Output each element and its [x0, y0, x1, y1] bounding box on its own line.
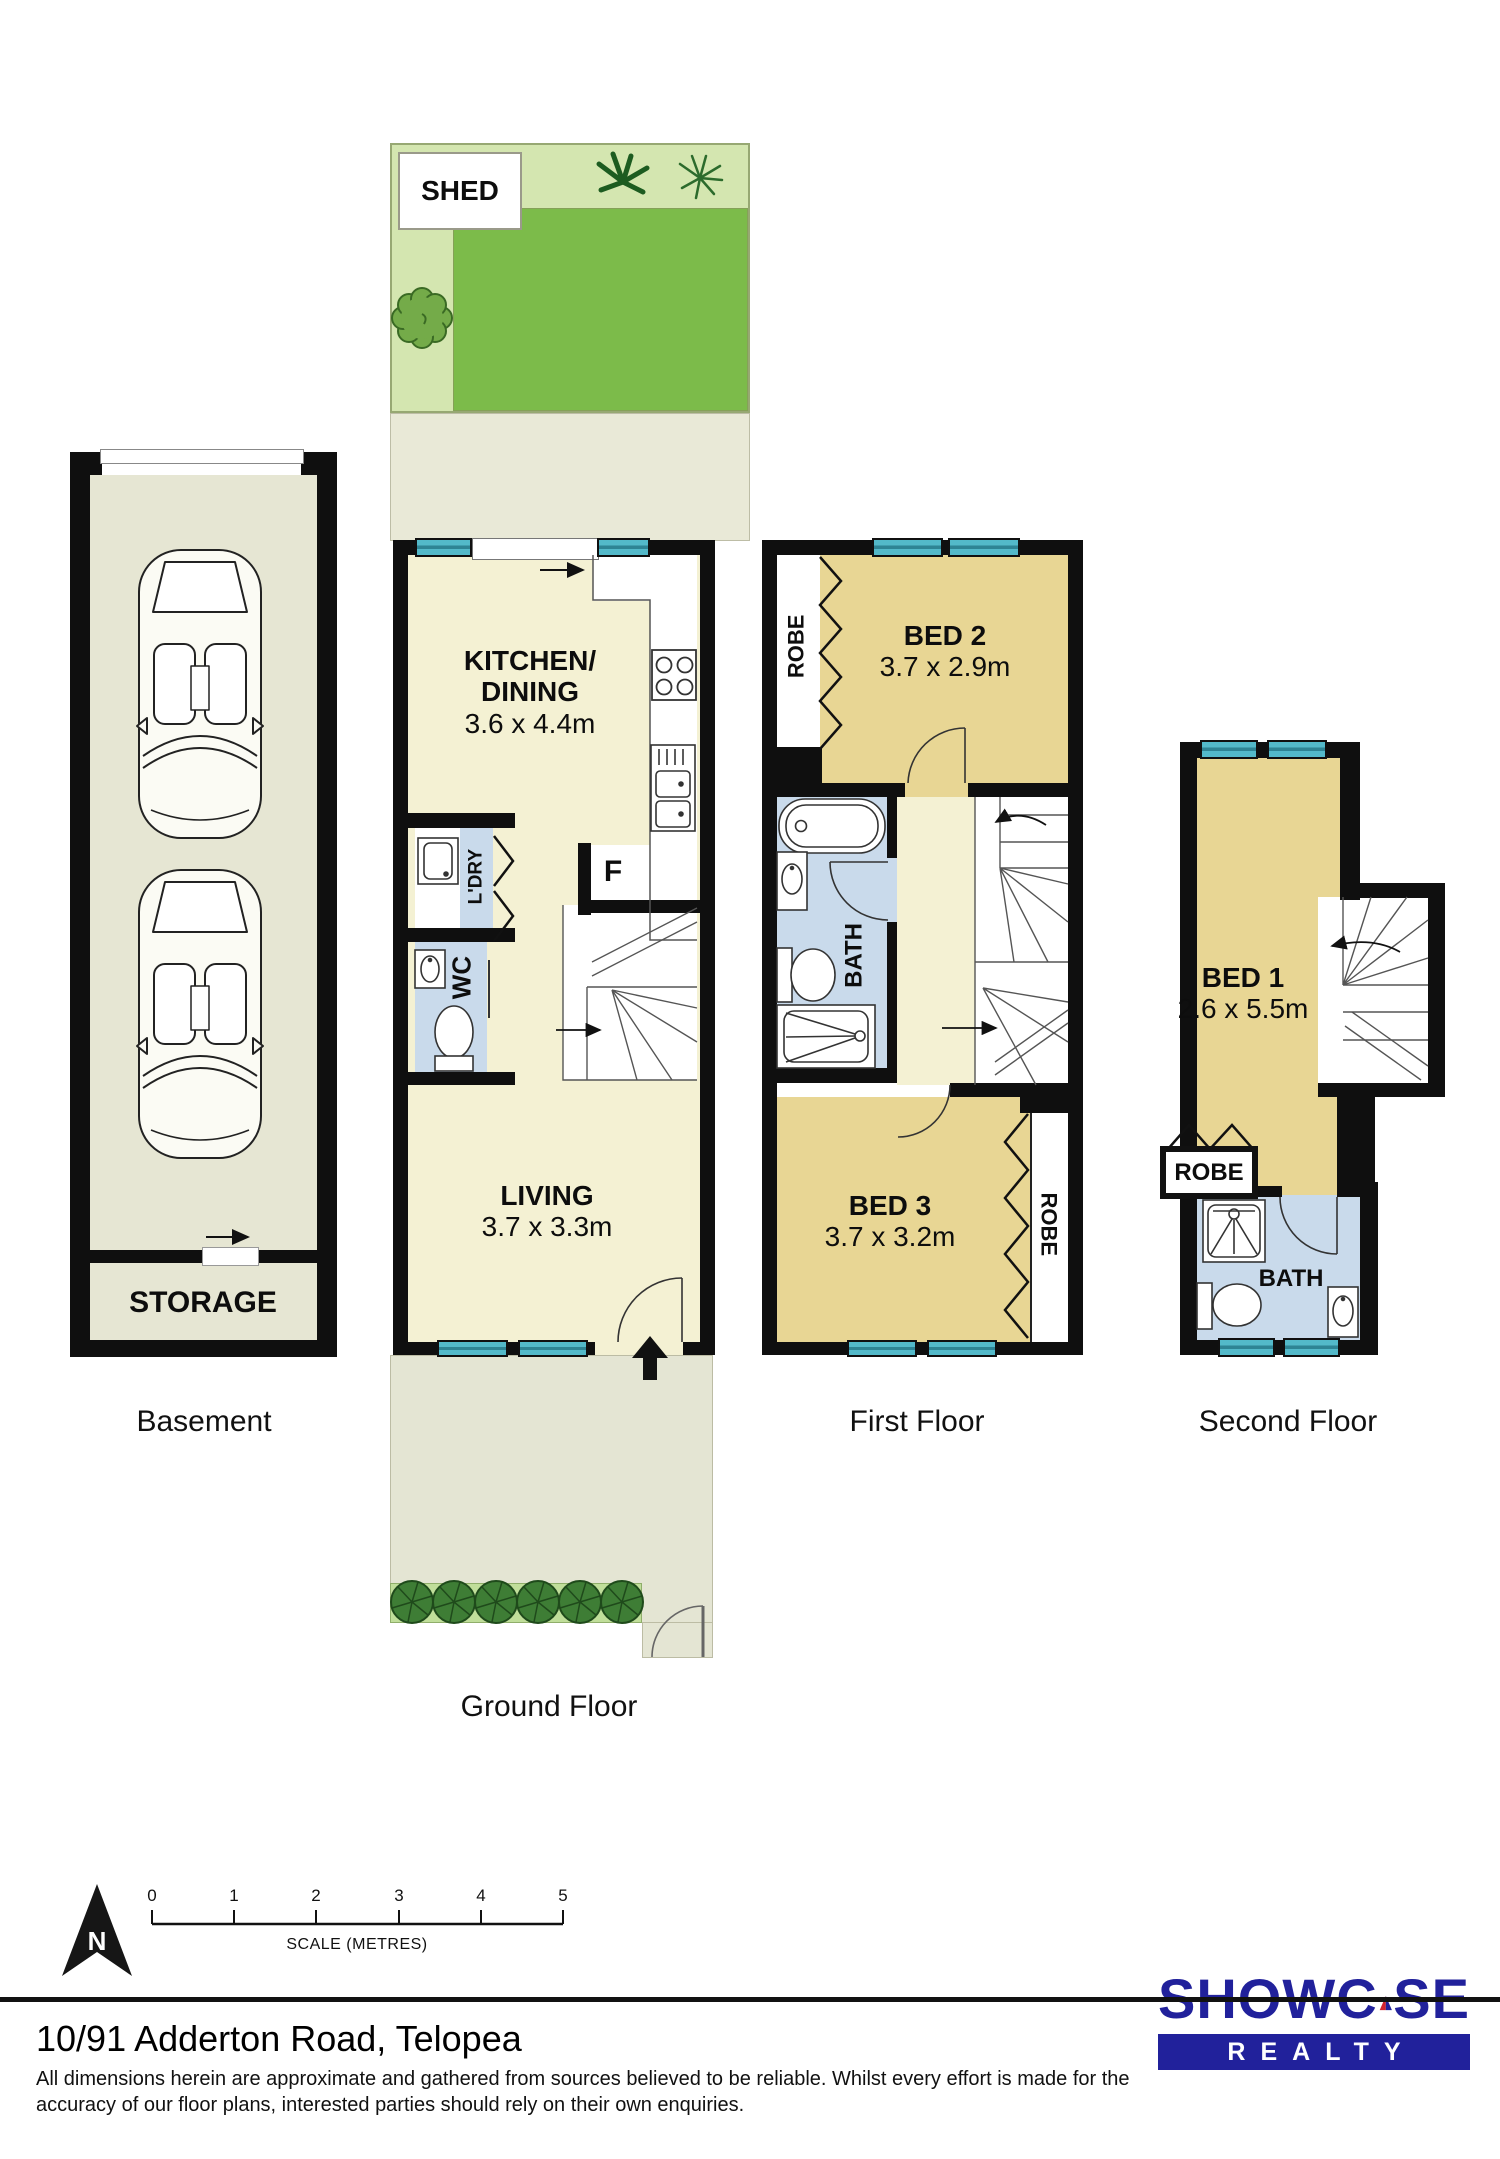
kitchen-dining-label: KITCHEN/ DINING 3.6 x 4.4m — [430, 645, 630, 739]
car-icon — [137, 870, 263, 1158]
second-floor-caption: Second Floor — [1138, 1405, 1438, 1439]
laundry-bifold-door — [494, 891, 513, 941]
living-label: LIVING 3.7 x 3.3m — [447, 1180, 647, 1243]
second-shower-icon — [1203, 1200, 1265, 1262]
bed1-name: BED 1 — [1143, 962, 1343, 993]
north-label: N — [88, 1926, 107, 1956]
stove-icon — [652, 650, 696, 700]
second-bath-label: BATH — [1241, 1266, 1341, 1293]
second-bath-door — [1280, 1197, 1337, 1254]
bed3-door — [898, 1085, 950, 1137]
bed2-label: BED 2 3.7 x 2.9m — [845, 620, 1045, 683]
laundry-tub-icon — [418, 838, 458, 884]
fern-icon — [680, 156, 722, 198]
footer-divider — [0, 1997, 1500, 2002]
first-floor-caption: First Floor — [767, 1405, 1067, 1439]
laundry-bifold-door — [494, 836, 513, 886]
second-staircase — [1332, 897, 1428, 1080]
floor-plan-sheet: SHED STORAGE Basement KITCHEN/ DINING — [0, 0, 1500, 2159]
bed2-dims: 3.7 x 2.9m — [845, 651, 1045, 682]
bed3-dims: 3.7 x 3.2m — [790, 1221, 990, 1252]
living-dims: 3.7 x 3.3m — [447, 1211, 647, 1242]
bed1-label: BED 1 2.6 x 5.5m — [1143, 962, 1343, 1025]
scale-bar — [152, 1910, 563, 1924]
scale-tick-5: 5 — [548, 1886, 578, 1906]
entry-door — [618, 1278, 682, 1342]
plan-linework: N — [0, 0, 1500, 2159]
bed1-robe-doors — [1168, 1125, 1253, 1149]
logo-realty-bar: REALTY — [1158, 2034, 1470, 2070]
bed3-name: BED 3 — [790, 1190, 990, 1221]
logo-realty-text: REALTY — [1227, 2038, 1415, 2067]
ground-floor-caption: Ground Floor — [399, 1690, 699, 1724]
kitchen-line2: DINING — [430, 676, 630, 707]
storage-text: STORAGE — [129, 1286, 277, 1319]
laundry-label: L'DRY — [465, 835, 486, 919]
disclaimer-line2: accuracy of our floor plans, interested … — [36, 2094, 744, 2117]
car-icon — [137, 550, 263, 838]
first-bath-label: BATH — [842, 915, 869, 995]
storage-label: STORAGE — [103, 1286, 303, 1320]
first-staircase — [942, 797, 1068, 1085]
kitchen-sink-icon — [651, 745, 695, 831]
entry-arrow — [632, 1336, 668, 1380]
disclaimer-line1: All dimensions herein are approximate an… — [36, 2068, 1130, 2091]
property-address: 10/91 Adderton Road, Telopea — [36, 2018, 522, 2060]
living-name: LIVING — [447, 1180, 647, 1211]
bed1-dims: 2.6 x 5.5m — [1143, 993, 1343, 1024]
bed3-label: BED 3 3.7 x 3.2m — [790, 1190, 990, 1253]
front-gate — [652, 1606, 703, 1657]
fridge-label: F — [593, 855, 633, 889]
kitchen-line1: KITCHEN/ — [430, 645, 630, 676]
scale-tick-1: 1 — [219, 1886, 249, 1906]
agency-logo: SHOWCSE REALTY — [1158, 1966, 1470, 2070]
first-bath-door — [830, 862, 888, 920]
bed3-robe-doors — [1005, 1114, 1028, 1338]
scale-tick-4: 4 — [466, 1886, 496, 1906]
bed2-door — [908, 728, 965, 783]
wc-toilet-icon — [435, 1006, 473, 1071]
bed2-robe-label: ROBE — [785, 591, 810, 701]
logo-triangle-icon — [1379, 1981, 1393, 2025]
basement-caption: Basement — [54, 1405, 354, 1439]
bush-icon — [392, 288, 452, 348]
scale-tick-3: 3 — [384, 1886, 414, 1906]
first-shower-icon — [777, 1005, 875, 1068]
plant-icon — [599, 154, 647, 192]
kitchen-dims: 3.6 x 4.4m — [430, 708, 630, 739]
bed2-robe-doors — [820, 557, 841, 749]
scale-label: SCALE (METRES) — [237, 1936, 477, 1954]
scale-tick-2: 2 — [301, 1886, 331, 1906]
vanity-basin-icon — [777, 852, 807, 910]
hedge-bushes — [391, 1581, 643, 1623]
ground-staircase — [556, 905, 697, 1080]
bed3-robe-label: ROBE — [1036, 1169, 1061, 1279]
bed2-name: BED 2 — [845, 620, 1045, 651]
first-toilet-icon — [777, 948, 835, 1002]
second-basin-icon — [1328, 1287, 1358, 1337]
wc-basin-icon — [415, 950, 445, 988]
bathtub-icon — [779, 799, 885, 853]
wc-label: WC — [447, 948, 476, 1008]
scale-tick-0: 0 — [137, 1886, 167, 1906]
